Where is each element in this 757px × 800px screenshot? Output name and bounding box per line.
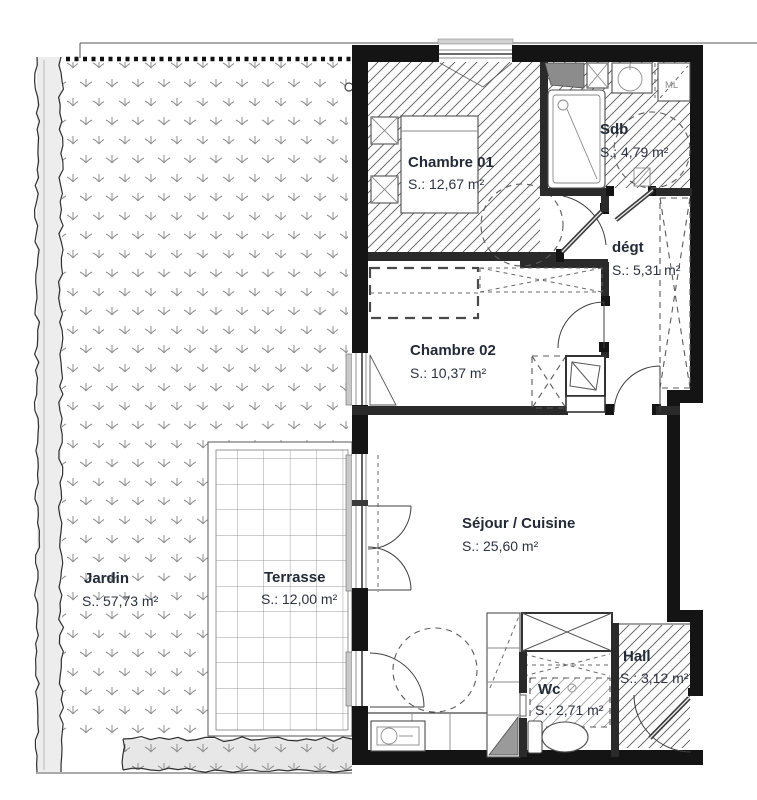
door-chambre02 <box>558 302 604 348</box>
door-jamb <box>606 186 614 196</box>
hall-floor-hatch <box>619 625 690 748</box>
french-door-leaf-bottom <box>368 547 411 590</box>
wall-sdb-south-right <box>654 188 692 196</box>
room-area-jardin: S.: 57,73 m² <box>82 593 159 609</box>
jamb <box>352 347 368 353</box>
room-hall: Hall S.: 3,12 m² <box>611 623 691 757</box>
room-label-terrasse: Terrasse <box>264 569 325 586</box>
wall-east-mid <box>667 397 680 614</box>
mullion <box>352 500 368 506</box>
room-area-hall: S.: 3,12 m² <box>620 670 689 686</box>
door-jamb <box>601 296 610 306</box>
wall-chambre02-south <box>352 406 568 415</box>
kitchen-tall-units <box>487 613 520 757</box>
downspout-symbol <box>345 83 353 91</box>
room-area-sdb: S.: 4,79 m² <box>600 144 669 160</box>
casement-swing <box>370 355 396 405</box>
wardrobe-dashed <box>660 198 690 388</box>
room-area-wc: S.: 2,71 m² <box>535 702 604 718</box>
room-label-hall: Hall <box>623 648 651 665</box>
jamb <box>512 45 519 62</box>
room-label-sdb: Sdb <box>600 121 628 138</box>
wc-door-panel <box>520 695 526 716</box>
door-swing <box>370 653 424 707</box>
sill <box>438 39 513 44</box>
terrace-tiles <box>216 450 348 730</box>
toilet <box>528 721 588 753</box>
wall-east-lower <box>690 622 703 695</box>
terrace <box>208 442 352 736</box>
wall-east-step2 <box>667 610 703 622</box>
floor-plan-page: Chambre 01 S.: 12,67 m² <box>0 0 757 800</box>
window-chambre02 <box>346 347 396 411</box>
french-door-leaf-top <box>368 506 411 549</box>
wall-chambre01-sdb <box>540 62 548 188</box>
shower <box>548 90 605 188</box>
door-chambre01 <box>562 196 606 252</box>
jamb <box>352 645 368 651</box>
room-label-sejour: Séjour / Cuisine <box>462 515 575 532</box>
kitchen-sink <box>371 721 425 751</box>
room-label-jardin: Jardin <box>84 570 129 587</box>
opening <box>352 650 368 708</box>
jamb <box>352 448 368 454</box>
corner-closet-dashed <box>532 356 566 408</box>
wall-east-upper <box>690 45 703 397</box>
kitchen-counter <box>368 713 488 752</box>
sill <box>346 354 352 405</box>
sink-vanity <box>612 63 652 93</box>
wall-wc-west-2 <box>519 718 527 757</box>
bathroom-cabinet <box>587 63 608 88</box>
technical-duct <box>566 356 605 412</box>
room-area-degt: S.: 5,31 m² <box>612 262 681 278</box>
room-label-chambre01: Chambre 01 <box>408 154 494 171</box>
wardrobe-dashed <box>370 268 478 318</box>
door-jamb <box>605 404 614 415</box>
jamb <box>352 706 368 712</box>
wall-south <box>352 750 703 765</box>
room-sdb: ML Sdb S.: 4,79 m² <box>540 62 692 220</box>
jamb <box>352 588 368 594</box>
entrance-jamb-top <box>688 688 703 696</box>
overhead-closet-dashed <box>480 268 602 292</box>
room-wc: Wc S.: 2,71 m² <box>519 652 610 757</box>
washing-machine-label: ML <box>665 80 678 91</box>
room-label-chambre02: Chambre 02 <box>410 342 496 359</box>
wall-wc-west-1 <box>519 652 527 693</box>
turning-circle <box>393 628 477 712</box>
hedge-left <box>35 57 64 772</box>
sill <box>346 455 352 591</box>
overhead-dashed-zone <box>524 654 610 676</box>
door-sejour-garden <box>346 645 424 712</box>
wall-west-3 <box>352 593 368 650</box>
room-area-chambre01: S.: 12,67 m² <box>408 176 485 192</box>
room-label-degt: dégt <box>612 239 644 256</box>
fridge-cupboard <box>522 613 612 651</box>
wall-top-right <box>513 45 703 62</box>
wall-hall-west <box>611 623 619 757</box>
room-area-terrasse: S.: 12,00 m² <box>261 591 338 607</box>
sill <box>346 652 352 706</box>
hedge-left-fill <box>37 57 61 772</box>
room-area-chambre02: S.: 10,37 m² <box>410 365 487 381</box>
door-swing <box>563 196 606 245</box>
jamb <box>432 45 439 62</box>
west-openings <box>346 347 424 712</box>
hedge-bottom <box>122 737 352 773</box>
hedge-bottom-grass <box>123 739 352 770</box>
wall-west-1 <box>352 45 368 352</box>
room-area-sejour: S.: 25,60 m² <box>462 538 539 554</box>
room-degt: dégt S.: 5,31 m² <box>599 198 690 415</box>
door-sdb <box>616 190 653 220</box>
shower-seat <box>545 63 584 88</box>
window-sejour-bay <box>346 448 411 594</box>
room-label-wc: Wc <box>538 681 561 698</box>
washing-machine-closet: ML <box>658 63 690 101</box>
floor-plan-drawing: Chambre 01 S.: 12,67 m² <box>0 0 757 800</box>
